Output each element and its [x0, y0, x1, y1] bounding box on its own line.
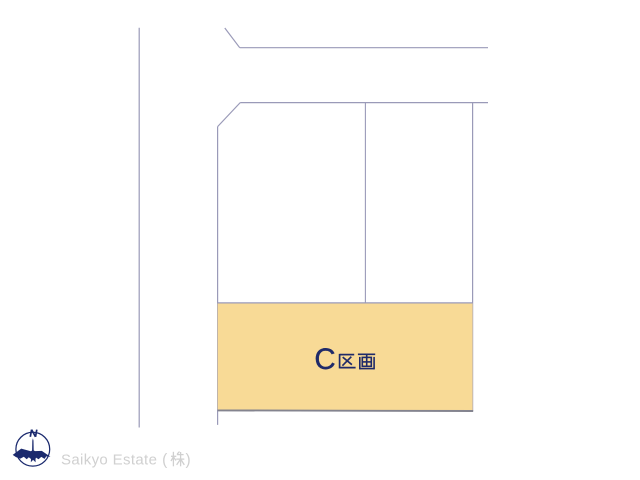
svg-text:Saikyo Estate: Saikyo Estate — [61, 451, 157, 468]
svg-text:): ) — [186, 452, 191, 469]
svg-text:(: ( — [162, 452, 168, 469]
svg-text:C: C — [314, 343, 335, 376]
